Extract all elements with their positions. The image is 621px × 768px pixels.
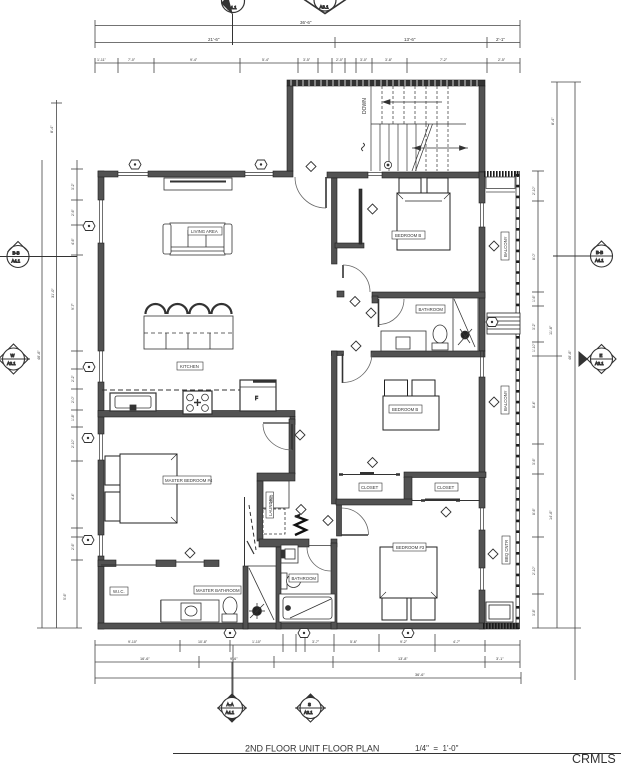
svg-text:3'-2": 3'-2"	[71, 182, 75, 190]
svg-text:A4.1: A4.1	[228, 5, 238, 10]
svg-text:8'-4": 8'-4"	[532, 400, 536, 408]
svg-text:13'-8": 13'-8"	[398, 657, 408, 661]
svg-text:2'-1": 2'-1"	[496, 37, 505, 42]
svg-text:W.I.C.: W.I.C.	[113, 589, 125, 594]
svg-text:36'-6": 36'-6"	[415, 673, 425, 677]
svg-text:E: E	[600, 353, 603, 358]
svg-text:1/4" = 1'-0": 1/4" = 1'-0"	[415, 744, 459, 753]
svg-text:CLOSET: CLOSET	[361, 485, 379, 490]
svg-text:W/D: W/D	[269, 495, 274, 503]
svg-text:3'-8": 3'-8"	[385, 58, 393, 62]
svg-text:A3.1: A3.1	[7, 361, 16, 366]
svg-text:W: W	[11, 353, 15, 358]
svg-text:1'-10": 1'-10"	[252, 640, 262, 644]
svg-text:5'-6": 5'-6"	[63, 592, 67, 600]
svg-text:A4.1: A4.1	[12, 259, 21, 264]
svg-text:3'-2": 3'-2"	[532, 322, 536, 330]
svg-text:1'-10": 1'-10"	[532, 343, 536, 352]
svg-text:2'-2": 2'-2"	[71, 374, 75, 382]
svg-text:MASTER BATHROOM: MASTER BATHROOM	[196, 588, 240, 593]
svg-text:CLOSET: CLOSET	[437, 485, 455, 490]
svg-text:46'-6": 46'-6"	[568, 350, 572, 360]
svg-text:4'-7": 4'-7"	[453, 640, 461, 644]
svg-text:2'-0": 2'-0"	[336, 58, 344, 62]
svg-text:14'-6": 14'-6"	[549, 510, 553, 520]
svg-text:8'-6": 8'-6"	[532, 507, 536, 515]
svg-text:KITCHEN: KITCHEN	[180, 364, 199, 369]
svg-text:BATHROOM: BATHROOM	[292, 576, 317, 581]
svg-text:A3.1: A3.1	[595, 361, 604, 366]
svg-text:DOWN: DOWN	[362, 98, 368, 114]
svg-text:2'-10": 2'-10"	[71, 439, 75, 448]
svg-text:B-B: B-B	[596, 250, 603, 255]
svg-text:3'-1": 3'-1"	[496, 657, 504, 661]
svg-text:A4.1: A4.1	[595, 258, 604, 263]
svg-text:36'-6": 36'-6"	[300, 20, 312, 25]
svg-text:16'-6": 16'-6"	[140, 657, 150, 661]
svg-text:4'-4": 4'-4"	[71, 492, 75, 500]
svg-text:1'-6": 1'-6"	[532, 294, 536, 302]
svg-text:8'-4": 8'-4"	[50, 125, 54, 133]
svg-text:LIVING AREA: LIVING AREA	[191, 229, 218, 234]
svg-text:BALCONY: BALCONY	[503, 236, 508, 257]
svg-text:3'-6": 3'-6"	[532, 457, 536, 465]
svg-text:46'-6": 46'-6"	[37, 350, 41, 360]
svg-text:7'-2": 7'-2"	[440, 58, 448, 62]
svg-text:1'-11": 1'-11"	[97, 58, 107, 62]
svg-text:2'-6": 2'-6"	[71, 542, 75, 550]
svg-text:10'-8": 10'-8"	[198, 640, 208, 644]
svg-text:7'-0": 7'-0"	[128, 58, 136, 62]
svg-text:5'-4": 5'-4"	[262, 58, 270, 62]
svg-text:9'-4": 9'-4"	[190, 58, 198, 62]
svg-text:1'-8": 1'-8"	[71, 413, 75, 421]
svg-text:BEDROOM #3: BEDROOM #3	[396, 545, 425, 550]
svg-text:S: S	[308, 702, 311, 707]
svg-text:9'-6": 9'-6"	[230, 657, 238, 661]
svg-text:2'-10": 2'-10"	[532, 566, 536, 575]
svg-text:5'-6": 5'-6"	[350, 640, 358, 644]
svg-text:A-A: A-A	[227, 702, 234, 707]
svg-text:2'-10": 2'-10"	[532, 186, 536, 195]
svg-text:CRMLS: CRMLS	[572, 752, 616, 766]
svg-text:4'-6": 4'-6"	[71, 237, 75, 245]
svg-text:9'-10": 9'-10"	[128, 640, 138, 644]
svg-text:F: F	[255, 396, 258, 402]
svg-text:BATHROOM: BATHROOM	[419, 307, 444, 312]
svg-text:B-B: B-B	[13, 251, 20, 256]
svg-text:31'-0": 31'-0"	[51, 288, 55, 298]
svg-text:BALCONY: BALCONY	[503, 390, 508, 411]
svg-text:9'-7": 9'-7"	[71, 302, 75, 310]
svg-text:13'-6": 13'-6"	[404, 37, 416, 42]
svg-text:A4.1: A4.1	[226, 710, 235, 715]
svg-text:8'-0": 8'-0"	[532, 252, 536, 260]
svg-text:8'-4": 8'-4"	[551, 117, 555, 125]
svg-text:11'-6": 11'-6"	[549, 325, 553, 335]
svg-text:3'-8": 3'-8"	[532, 608, 536, 616]
svg-text:BEDROOM B: BEDROOM B	[392, 407, 418, 412]
svg-text:2'-0": 2'-0"	[71, 395, 75, 403]
svg-text:2'-6": 2'-6"	[71, 208, 75, 216]
svg-text:BEDROOM B: BEDROOM B	[395, 233, 421, 238]
svg-text:2ND FLOOR UNIT FLOOR PLAN: 2ND FLOOR UNIT FLOOR PLAN	[245, 744, 379, 754]
svg-text:MASTER BEDROOM #4: MASTER BEDROOM #4	[165, 478, 213, 483]
svg-text:3'-0": 3'-0"	[360, 58, 368, 62]
svg-text:9'-2": 9'-2"	[400, 640, 408, 644]
svg-text:2'-5": 2'-5"	[498, 58, 506, 62]
svg-text:21'-6": 21'-6"	[208, 37, 220, 42]
svg-text:A3.1: A3.1	[320, 5, 330, 10]
svg-text:A3.1: A3.1	[304, 710, 313, 715]
svg-text:3'-7": 3'-7"	[312, 640, 320, 644]
svg-text:BBQ CNTR: BBQ CNTR	[504, 540, 509, 562]
svg-text:3'-5": 3'-5"	[303, 58, 311, 62]
